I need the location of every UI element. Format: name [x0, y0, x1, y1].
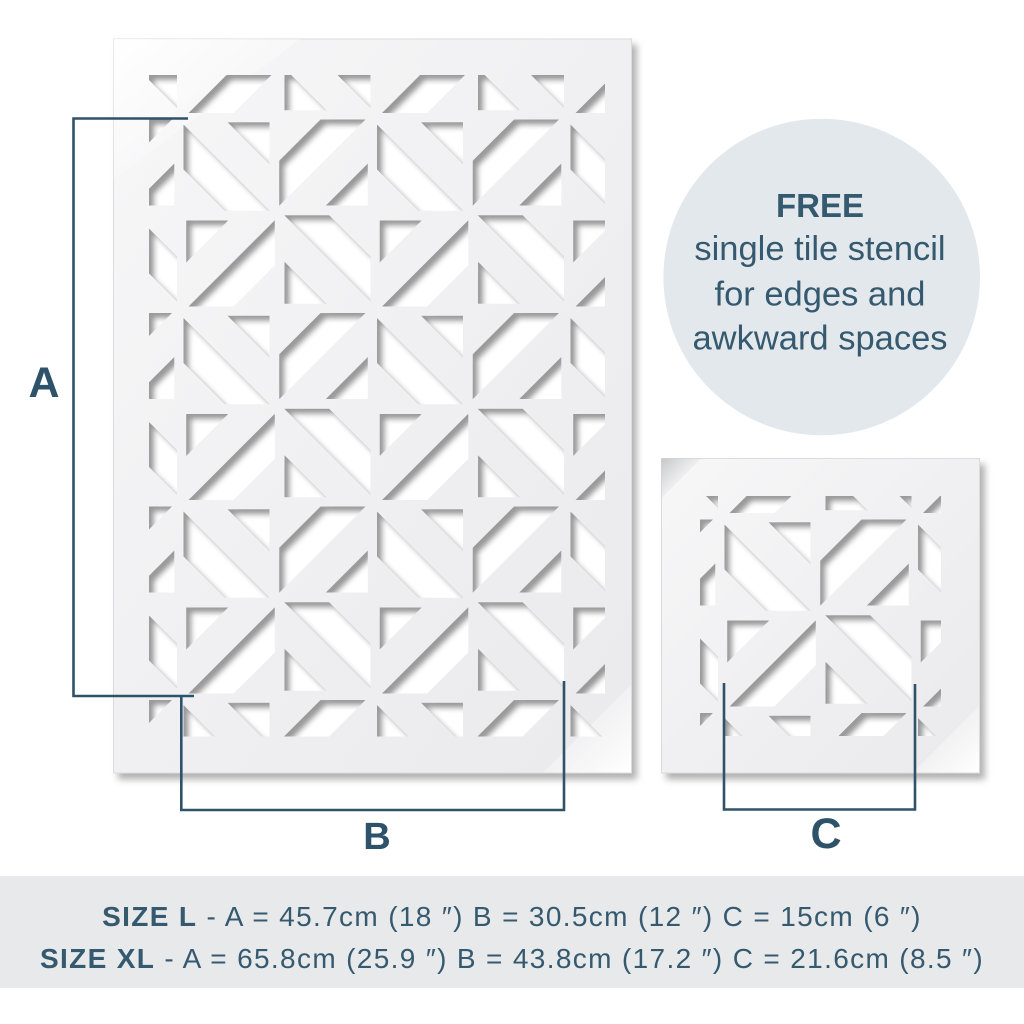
- svg-text:awkward spaces: awkward spaces: [692, 320, 947, 358]
- svg-text:A: A: [28, 359, 59, 407]
- svg-text:FREE: FREE: [776, 187, 864, 224]
- svg-text:SIZE XL - A = 65.8cm (25.9 ″): SIZE XL - A = 65.8cm (25.9 ″) B = 43.8cm…: [40, 943, 984, 974]
- svg-text:SIZE L - A = 45.7cm (18 ″) B =: SIZE L - A = 45.7cm (18 ″) B = 30.5cm (1…: [102, 901, 922, 932]
- svg-text:single tile stencil: single tile stencil: [694, 230, 945, 268]
- svg-text:B: B: [363, 816, 390, 858]
- svg-text:C: C: [810, 810, 841, 858]
- svg-text:for edges and: for edges and: [715, 276, 926, 314]
